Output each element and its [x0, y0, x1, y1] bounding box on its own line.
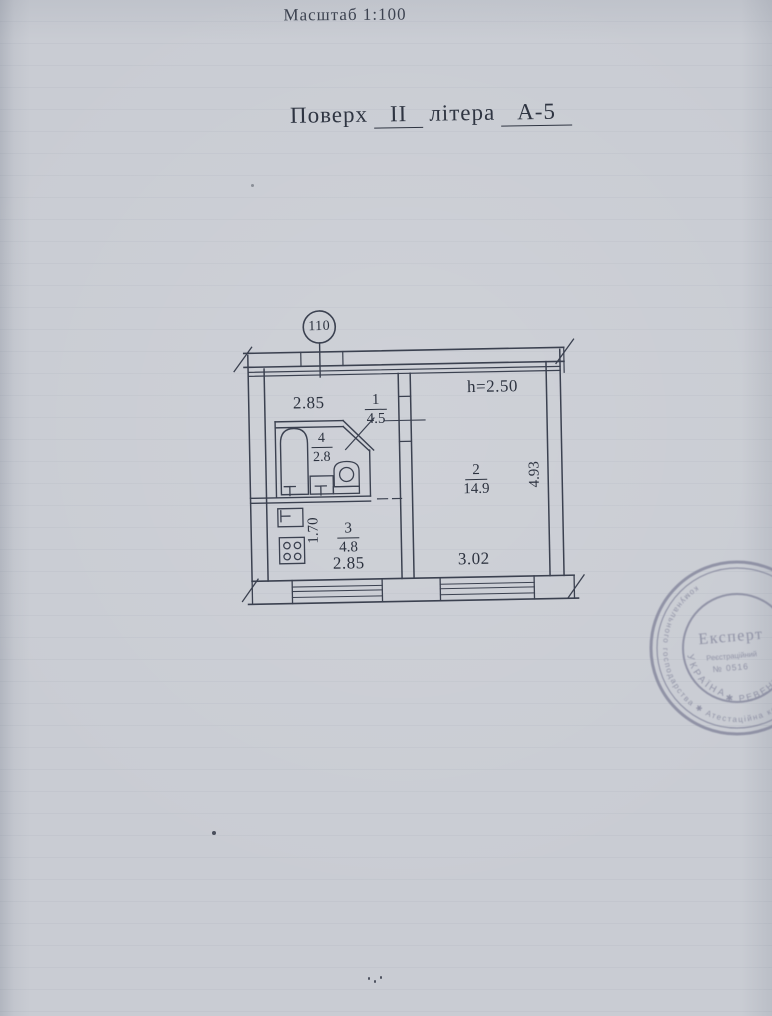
paper-speck	[374, 980, 376, 983]
dim-room-width: 3.02	[449, 549, 499, 570]
room-area: 4.5	[367, 411, 386, 427]
paper-speck	[368, 977, 370, 980]
floor-plan: 110 2.85 1 4.5 h=2.50 4 2.8 2 14.9 4.93 …	[0, 0, 772, 1016]
room-number: 4	[311, 431, 332, 448]
room-label-living-room: 2 14.9	[452, 461, 501, 499]
stove-icon	[279, 537, 304, 563]
top-wall	[234, 339, 575, 379]
expert-stamp: комунального господарства ✱ Атестаційна …	[628, 543, 772, 755]
stamp-reg-number: № 0516	[712, 661, 749, 674]
room-area: 2.8	[313, 450, 331, 465]
left-wall	[248, 355, 268, 581]
floor-plan-drawing	[0, 0, 772, 1016]
toilet-icon	[333, 461, 360, 493]
dim-kitchen-depth: 1.70	[305, 506, 323, 554]
room-area: 14.9	[463, 481, 490, 498]
apartment-number: 110	[303, 319, 335, 336]
ceiling-height-label: h=2.50	[450, 376, 534, 398]
paper-speck	[212, 831, 216, 835]
window-right	[440, 582, 534, 594]
paper-speck	[380, 976, 382, 979]
stamp-reg-label: Реєстраційний	[706, 649, 757, 662]
window-left	[292, 585, 382, 597]
dim-kitchen-width: 2.85	[324, 553, 374, 574]
interior-top-wall	[248, 366, 560, 376]
room-label-hall: 1 4.5	[353, 390, 398, 428]
stamp-title: Експерт	[698, 626, 764, 649]
bottom-wall-windows	[242, 573, 584, 605]
room-number: 2	[465, 463, 487, 480]
right-wall	[546, 349, 564, 575]
room-number: 3	[337, 521, 359, 538]
sink-icon	[310, 476, 333, 494]
scanned-floor-plan-page: Масштаб 1:100 ПоверхIIлітераА-5	[0, 0, 772, 1016]
paper-speck	[251, 184, 254, 187]
dim-room-depth: 4.93	[526, 449, 544, 499]
kitchen-sink-icon	[278, 508, 303, 526]
room-label-bathroom: 4 2.8	[299, 429, 344, 467]
room-label-kitchen: 3 4.8	[326, 519, 371, 557]
room-number: 1	[365, 393, 387, 410]
dim-hall-width: 2.85	[284, 393, 334, 414]
